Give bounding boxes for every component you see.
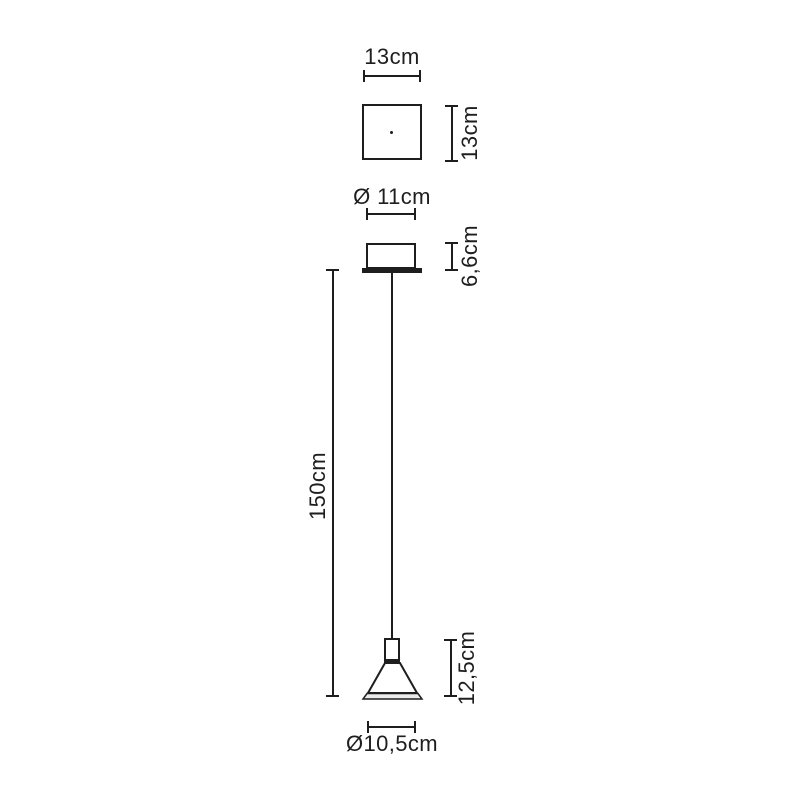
suspension-cable bbox=[391, 273, 393, 638]
plate-width-dim-line bbox=[363, 70, 421, 82]
plate-width-label: 13cm bbox=[292, 46, 492, 68]
canopy-diameter-label: Ø 11cm bbox=[292, 186, 492, 208]
pendant-lamp-dimension-diagram: 13cm 13cm Ø 11cm 6,6cm 150cm 12,5cm Ø10,… bbox=[0, 0, 800, 800]
canopy-height-label: 6,6cm bbox=[459, 225, 481, 287]
shade-cone-body bbox=[368, 663, 417, 693]
plate-height-label: 13cm bbox=[459, 105, 481, 160]
shade-diameter-label: Ø10,5cm bbox=[292, 733, 492, 755]
canopy-diameter-dim-line bbox=[366, 208, 416, 220]
shade-bottom-rim bbox=[363, 694, 422, 700]
shade-cone bbox=[358, 658, 428, 703]
cable-exit-dot bbox=[390, 131, 393, 134]
cable-length-label: 150cm bbox=[307, 452, 329, 520]
shade-height-label: 12,5cm bbox=[456, 631, 478, 706]
canopy bbox=[366, 243, 416, 269]
